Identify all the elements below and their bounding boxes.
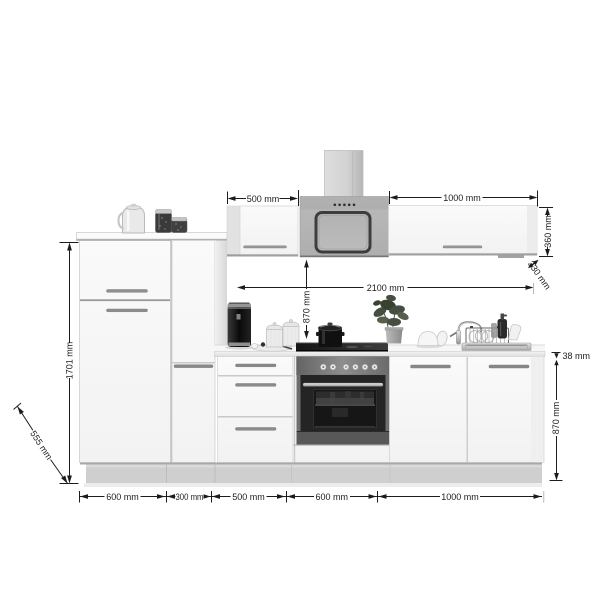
svg-text:600 mm: 600 mm bbox=[106, 492, 139, 502]
svg-text:1000 mm: 1000 mm bbox=[443, 193, 481, 203]
svg-text:1000 mm: 1000 mm bbox=[441, 492, 479, 502]
svg-text:300 mm: 300 mm bbox=[176, 492, 204, 502]
svg-text:500 mm: 500 mm bbox=[232, 492, 265, 502]
svg-text:555 mm: 555 mm bbox=[28, 429, 54, 462]
svg-text:2100 mm: 2100 mm bbox=[367, 283, 405, 293]
svg-text:870 mm: 870 mm bbox=[301, 291, 311, 324]
svg-text:600 mm: 600 mm bbox=[316, 492, 349, 502]
svg-text:500 mm: 500 mm bbox=[247, 194, 280, 204]
svg-text:38 mm: 38 mm bbox=[563, 351, 591, 361]
svg-text:1701 mm: 1701 mm bbox=[64, 342, 74, 380]
svg-text:870 mm: 870 mm bbox=[551, 402, 561, 435]
svg-text:360 mm: 360 mm bbox=[543, 215, 553, 248]
